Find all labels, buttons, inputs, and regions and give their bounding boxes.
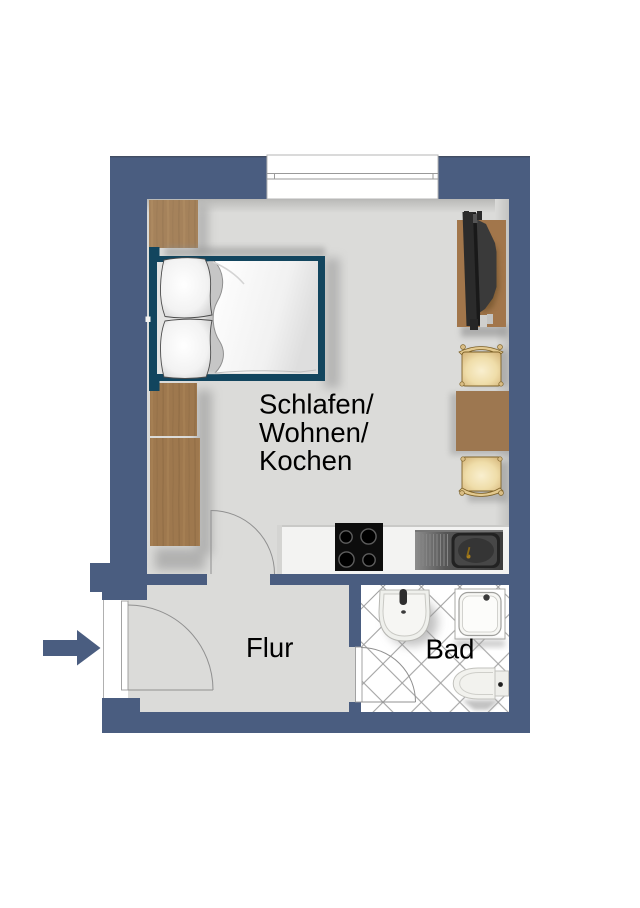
svg-text:Schlafen/: Schlafen/: [259, 389, 374, 420]
svg-text:Flur: Flur: [246, 632, 293, 663]
svg-text:Kochen: Kochen: [259, 445, 352, 476]
svg-text:Wohnen/: Wohnen/: [259, 417, 369, 448]
svg-text:Bad: Bad: [426, 634, 475, 665]
